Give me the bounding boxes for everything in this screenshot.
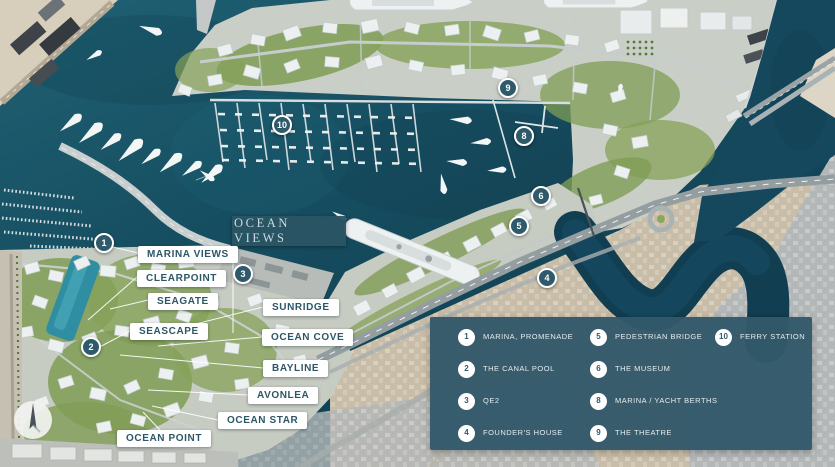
ocean-views-title-badge: OCEAN VIEWS (232, 216, 346, 246)
masterplan-map-screenshot: OCEAN VIEWS MARINA VIEWSCLEARPOINTSEAGAT… (0, 0, 835, 467)
legend-number-badge: 8 (590, 393, 607, 410)
poi-marker-10[interactable]: 10 (272, 115, 292, 135)
legend-item: 4 FOUNDER'S HOUSE (458, 417, 590, 449)
project-label-sunridge[interactable]: SUNRIDGE (263, 299, 339, 316)
legend-label: MARINA / YACHT BERTHS (615, 397, 717, 405)
poi-marker-4[interactable]: 4 (537, 268, 557, 288)
legend-number-badge: 6 (590, 361, 607, 378)
project-label-seascape[interactable]: SEASCAPE (130, 323, 208, 340)
project-label-bayline[interactable]: BAYLINE (263, 360, 328, 377)
compass-north-indicator (14, 401, 52, 439)
project-label-ocean-star[interactable]: OCEAN STAR (218, 412, 307, 429)
project-label-ocean-point[interactable]: OCEAN POINT (117, 430, 211, 447)
poi-marker-1[interactable]: 1 (94, 233, 114, 253)
legend-column: 5 PEDESTRIAN BRIDGE 6 THE MUSEUM 8 MARIN… (590, 321, 715, 450)
project-label-clearpoint[interactable]: CLEARPOINT (137, 270, 226, 287)
legend-column: 10 FERRY STATION (715, 321, 812, 450)
poi-marker-2[interactable]: 2 (81, 337, 101, 357)
poi-marker-5[interactable]: 5 (509, 216, 529, 236)
legend-item: 3 QE2 (458, 385, 590, 417)
legend-column: 1 MARINA, PROMENADE 2 THE CANAL POOL 3 Q… (458, 321, 590, 450)
legend-item: 2 THE CANAL POOL (458, 353, 590, 385)
legend-label: FOUNDER'S HOUSE (483, 429, 563, 437)
legend-label: FERRY STATION (740, 333, 805, 341)
legend-number-badge: 2 (458, 361, 475, 378)
project-label-seagate[interactable]: SEAGATE (148, 293, 218, 310)
legend-number-badge: 9 (590, 425, 607, 442)
project-label-avonlea[interactable]: AVONLEA (248, 387, 318, 404)
poi-marker-3[interactable]: 3 (233, 264, 253, 284)
legend-number-badge: 4 (458, 425, 475, 442)
legend-number-badge: 3 (458, 393, 475, 410)
legend-number-badge: 10 (715, 329, 732, 346)
legend-item: 1 MARINA, PROMENADE (458, 321, 590, 353)
legend-label: THE CANAL POOL (483, 365, 555, 373)
project-label-marina-views[interactable]: MARINA VIEWS (138, 246, 238, 263)
poi-marker-6[interactable]: 6 (531, 186, 551, 206)
legend-item: 8 MARINA / YACHT BERTHS (590, 385, 715, 417)
legend-label: PEDESTRIAN BRIDGE (615, 333, 702, 341)
legend-item: 10 FERRY STATION (715, 321, 812, 353)
legend-label: MARINA, PROMENADE (483, 333, 573, 341)
poi-marker-8[interactable]: 8 (514, 126, 534, 146)
legend-item: 5 PEDESTRIAN BRIDGE (590, 321, 715, 353)
legend-label: THE MUSEUM (615, 365, 670, 373)
legend-number-badge: 5 (590, 329, 607, 346)
legend-label: THE THEATRE (615, 429, 672, 437)
project-label-ocean-cove[interactable]: OCEAN COVE (262, 329, 353, 346)
legend-item: 6 THE MUSEUM (590, 353, 715, 385)
legend-number-badge: 1 (458, 329, 475, 346)
poi-marker-9[interactable]: 9 (498, 78, 518, 98)
legend-label: QE2 (483, 397, 500, 405)
legend-panel: 1 MARINA, PROMENADE 2 THE CANAL POOL 3 Q… (430, 317, 812, 450)
legend-item: 9 THE THEATRE (590, 417, 715, 449)
